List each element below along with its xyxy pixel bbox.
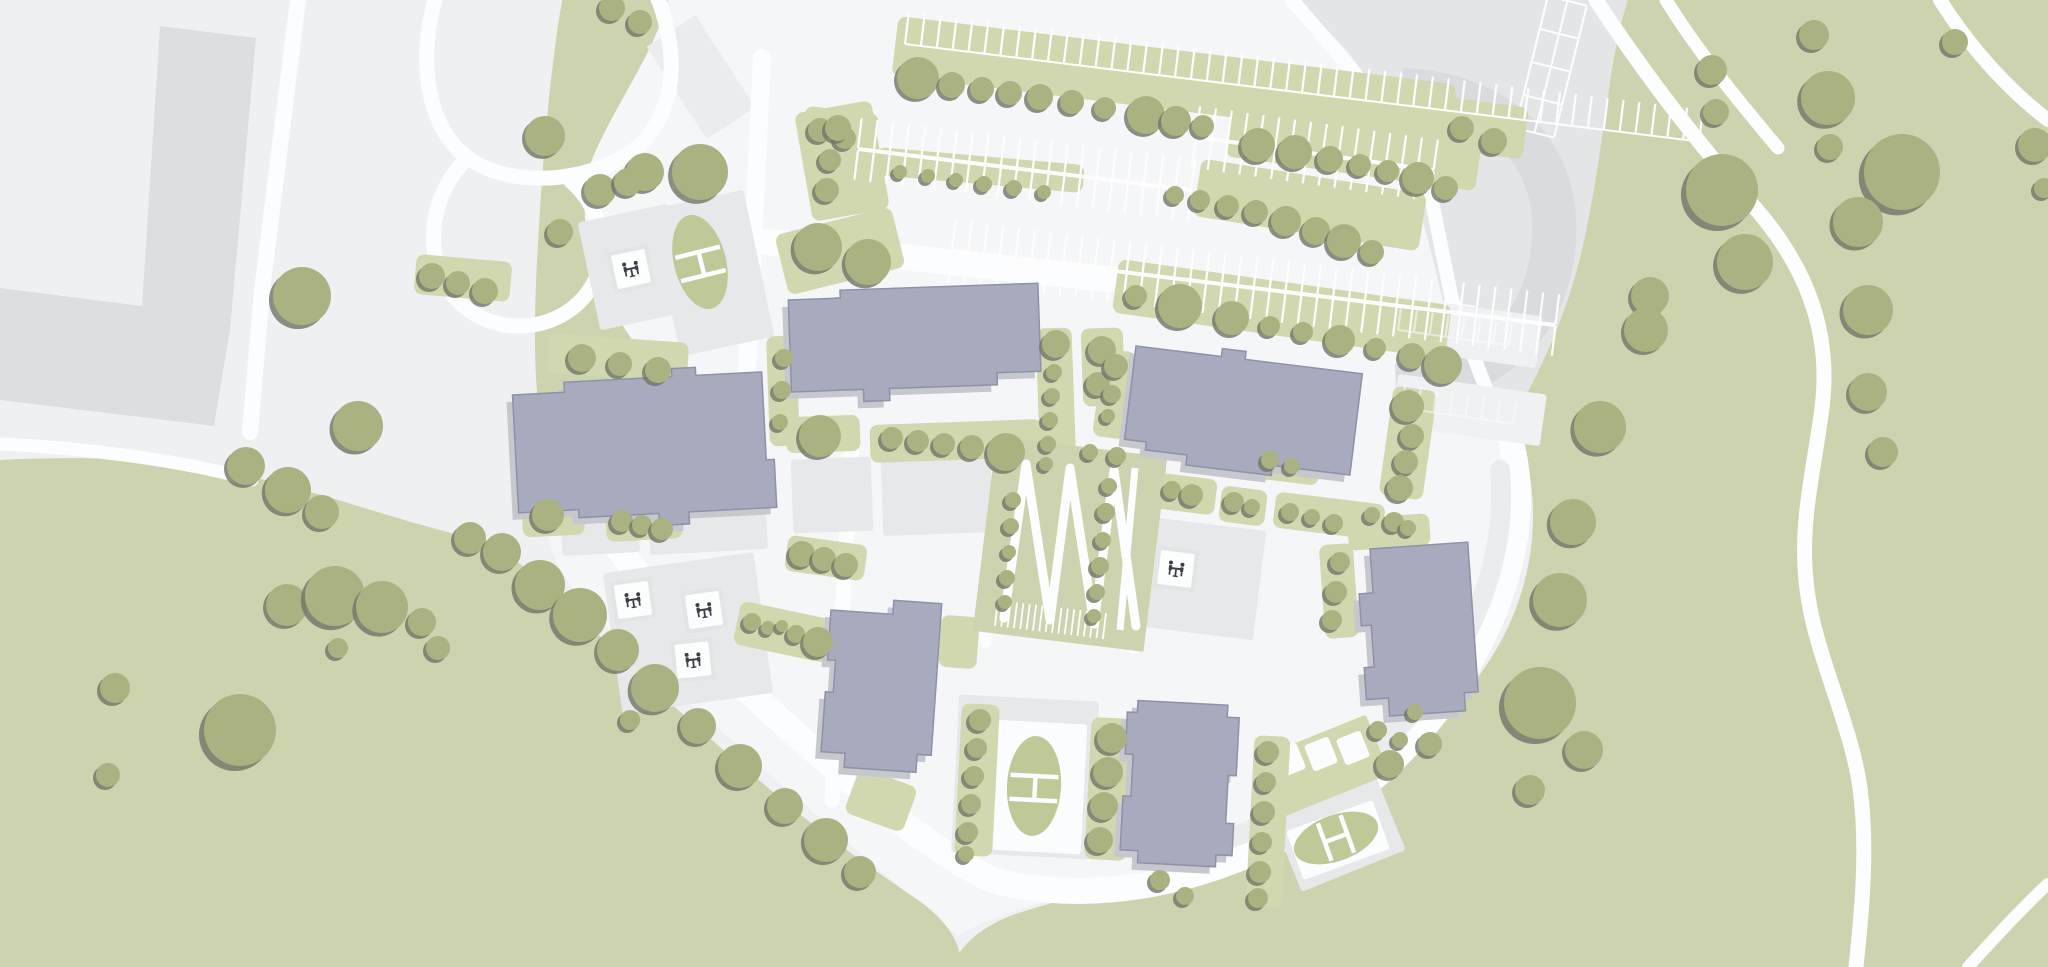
tree-crown [1387,475,1413,501]
plaza [791,457,874,534]
picnic-area [680,586,727,633]
tree-crown [1042,330,1070,358]
tree-crown [1717,234,1773,290]
tree-crown [1392,732,1408,748]
tree-crown [553,588,607,642]
tree-crown [1801,71,1855,125]
building-footprint [1356,542,1479,717]
tree-crown [328,638,348,658]
tree-crown [1257,741,1279,763]
tree-crown [1293,322,1313,342]
tree-crown [651,518,673,540]
tree-crown [100,673,130,703]
tree-crown [1799,20,1829,50]
tree-crown [1217,195,1239,217]
tree-crown [1864,134,1940,210]
tree-crown [1504,667,1576,739]
tree-crown [1565,731,1603,769]
tree-crown [961,794,981,814]
tree-crown [815,178,839,202]
tree-crown [1843,285,1893,335]
tree-crown [333,401,383,451]
tree-crown [1833,197,1883,247]
tree-crown [1400,520,1416,536]
tree-crown [970,77,994,101]
building-east [1350,542,1479,724]
tree-crown [1224,492,1244,512]
tree-crown [1817,134,1843,160]
tree-crown [1281,503,1299,521]
tree-crown [761,621,775,635]
tree-crown [1369,721,1387,739]
tree-crown [1040,436,1056,452]
tree-crown [1244,200,1268,224]
tree-crown [525,116,565,156]
tree-crown [1325,581,1347,603]
picnic-area [1153,546,1200,593]
tree-crown [718,744,762,788]
tree-crown [1392,390,1424,422]
tree-crown [1377,160,1399,182]
tree-crown [819,149,841,171]
tree-crown [1349,154,1371,176]
tree-crown [1322,610,1342,630]
tree-crown [1249,861,1271,883]
picnic-area [606,244,656,294]
tree-crown [1158,284,1202,328]
tree-crown [958,822,978,842]
tree-crown [1260,316,1280,336]
tree-crown [1849,373,1887,411]
tree-crown [893,165,907,179]
tree-crown [408,608,436,636]
tree-crown [227,447,265,485]
tree-crown [1253,801,1275,823]
tree-crown [483,533,521,571]
tree-crown [1261,451,1279,469]
picnic-area [609,576,656,623]
tree-crown [1248,888,1268,908]
tree-crown [907,430,929,452]
tree-crown [1091,557,1109,575]
tree-crown [1252,832,1272,852]
tree-crown [1176,887,1194,905]
tree-crown [844,856,876,888]
tree-crown [1256,772,1276,792]
tree-crown [1101,478,1117,494]
tree-crown [1027,84,1053,110]
tree-crown [804,818,848,862]
tree-crown [419,263,445,289]
tree-crown [998,595,1012,609]
tree-crown [1094,97,1116,119]
tree-crown [1278,135,1312,169]
tree-crown [1241,128,1275,162]
tree-crown [976,176,992,192]
building-southeast [1114,700,1240,875]
tree-crown [967,738,987,758]
plaza [881,458,994,536]
tree-crown [204,694,276,766]
tree-crown [1108,447,1126,465]
picnic-area [670,637,716,683]
tree-crown [1087,609,1101,623]
tree-crown [1317,146,1343,172]
tree-crown [1166,186,1184,204]
tree-crown [1271,206,1301,236]
tree-crown [1060,90,1084,114]
tree-crown [305,495,339,529]
tree-crown [1325,325,1355,355]
tree-crown [1103,385,1121,403]
building-footprint [820,596,942,773]
tree-crown [1550,499,1596,545]
tree-crown [1686,154,1758,226]
tree-crown [1104,354,1128,378]
tree-crown [1090,792,1118,820]
tree-crown [1089,584,1105,600]
tree-crown [834,553,858,577]
tree-crown [1868,437,1898,467]
tree-crown [1244,499,1260,515]
tree-crown [1515,775,1545,805]
tree-crown [1394,450,1418,474]
tree-crown [1697,55,1727,85]
tree-crown [426,636,450,660]
tree-crown [799,415,841,457]
tree-crown [772,414,788,430]
tree-crown [672,144,728,200]
tree-crown [921,169,935,183]
tree-crown [628,10,652,34]
tree-crown [1037,185,1051,199]
tree-crown [803,627,833,657]
tree-crown [1703,99,1729,125]
tree-crown [1325,514,1343,532]
tree-crown [472,278,498,304]
tree-crown [1574,401,1626,453]
tree-crown [1624,308,1668,352]
tree-crown [614,168,642,196]
tree-crown [958,846,974,862]
tree-crown [1330,552,1350,572]
site-plan-svg [0,0,2048,967]
site-plan [0,0,2048,967]
tree-crown [949,173,963,187]
tree-crown [1039,457,1053,471]
tree-crown [775,349,793,367]
tree-crown [773,381,791,399]
tree-crown [446,271,470,295]
tree-crown [1364,507,1380,523]
tree-crown [608,352,632,376]
building-footprint [1120,700,1240,868]
tree-crown [1002,545,1016,559]
tree-crown [987,433,1025,471]
tree-crown [969,709,991,731]
tree-crown [1407,704,1423,720]
tree-crown [1005,492,1021,508]
tree-crown [1450,116,1474,140]
tree-crown [1434,176,1458,200]
tree-crown [1097,723,1127,753]
tree-crown [1304,509,1320,525]
tree-crown [881,427,903,449]
tree-crown [1150,870,1170,890]
tree-crown [620,710,640,730]
tree-crown [1006,180,1022,196]
tree-crown [1125,285,1147,307]
tree-crown [1161,106,1191,136]
tree-crown [1046,364,1062,380]
tree-crown [1003,518,1019,534]
tree-crown [597,629,639,671]
tree-crown [547,219,573,245]
tree-crown [1327,224,1361,258]
tree-crown [680,708,716,744]
tree-crown [1192,115,1214,137]
tree-crown [1097,503,1115,521]
tree-crown [1087,827,1113,853]
tree-crown [568,344,596,372]
tree-crown [794,223,842,271]
tree-crown [825,115,851,141]
tree-crown [1360,240,1384,264]
tree-crown [1044,388,1060,404]
tree-crown [1215,301,1249,335]
tree-crown [356,581,408,633]
field-line [1034,776,1035,800]
tree-crown [1181,484,1203,506]
tree-crown [743,613,761,631]
tree-crown [767,788,803,824]
tree-crown [933,433,955,455]
tree-crown [1533,573,1587,627]
tree-crown [1190,190,1210,210]
tree-crown [1424,346,1462,384]
tree-crown [1376,750,1404,778]
tree-crown [631,664,679,712]
tree-crown [1399,343,1425,369]
tree-crown [1093,757,1123,787]
tree-crown [1481,128,1507,154]
planting-bed [938,615,980,670]
tree-crown [1400,424,1424,448]
tree-crown [265,467,311,513]
tree-crown [939,72,965,98]
tree-crown [273,267,331,325]
tree-crown [1101,409,1115,423]
tree-crown [1942,29,1968,55]
tree-crown [1042,412,1058,428]
tree-crown [999,570,1015,586]
tree-crown [897,57,939,99]
tree-crown [532,499,564,531]
tree-crown [1402,162,1434,194]
tree-crown [645,357,671,383]
tree-crown [1082,444,1098,460]
tree-crown [998,81,1022,105]
tree-crown [1366,338,1386,358]
tree-crown [1095,532,1111,548]
tree-crown [845,239,891,285]
tree-crown [96,763,120,787]
building-south [814,596,942,780]
tree-crown [776,620,788,632]
tree-crown [1418,732,1442,756]
tree-crown [960,435,984,459]
tree-crown [584,174,616,206]
tree-crown [964,766,984,786]
tree-crown [1284,458,1300,474]
